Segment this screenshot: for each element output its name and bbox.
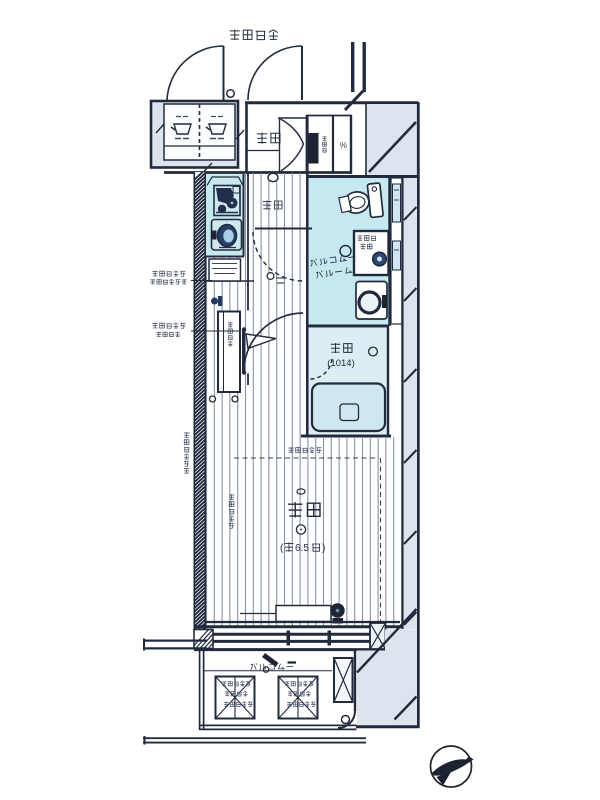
svg-text:): ) bbox=[322, 543, 325, 554]
svg-text:(1014): (1014) bbox=[327, 358, 354, 369]
svg-text:%: % bbox=[340, 140, 348, 150]
svg-text:6.5: 6.5 bbox=[295, 543, 309, 554]
